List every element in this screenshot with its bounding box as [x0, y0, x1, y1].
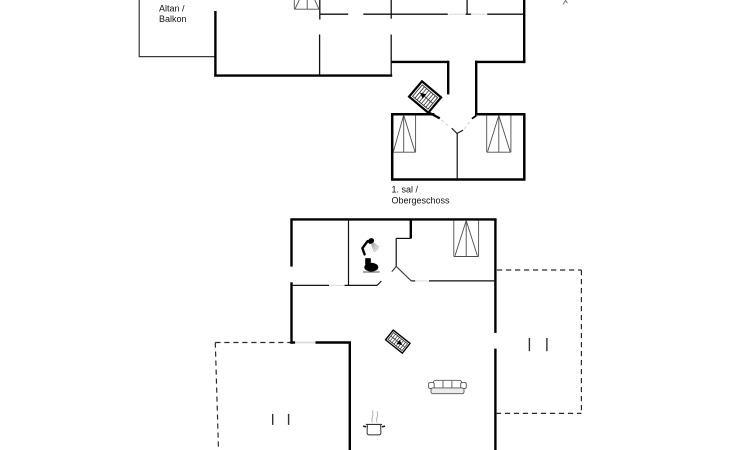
svg-text:Obergeschoss: Obergeschoss: [392, 195, 451, 205]
svg-text:1. sal /: 1. sal /: [392, 185, 419, 195]
svg-text:Balkon: Balkon: [159, 14, 187, 24]
svg-text:Altan /: Altan /: [159, 4, 185, 14]
